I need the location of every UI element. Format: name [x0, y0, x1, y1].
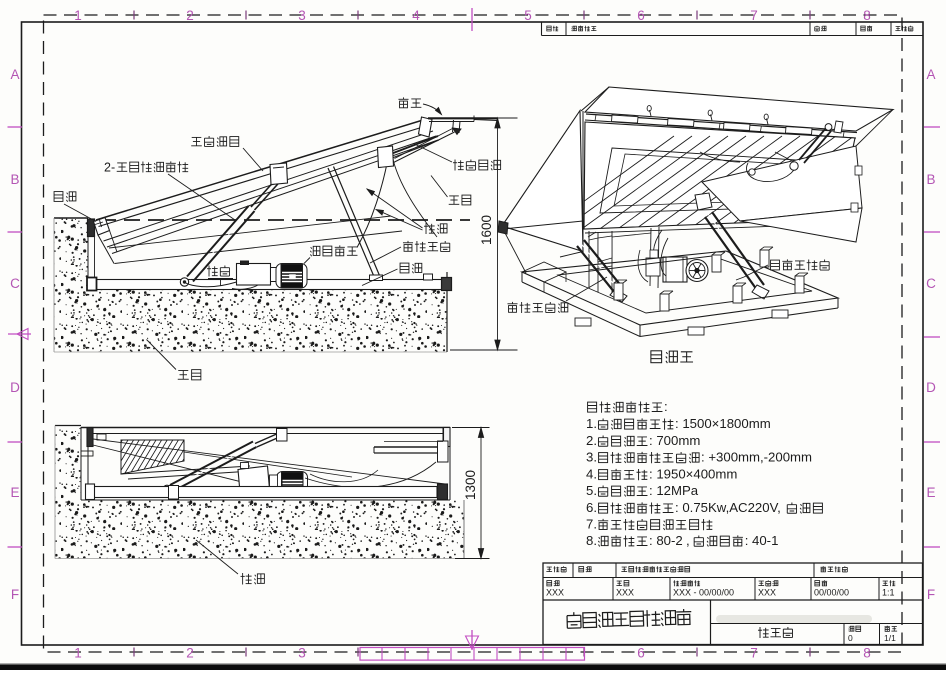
svg-text:E: E	[10, 485, 19, 500]
svg-text:F: F	[927, 587, 935, 602]
svg-text:B: B	[926, 172, 935, 187]
svg-text:1/1: 1/1	[884, 633, 896, 643]
svg-text:6: 6	[637, 646, 645, 661]
svg-text:,: ,	[686, 533, 690, 548]
svg-text:7: 7	[750, 8, 758, 23]
svg-text:1.: 1.	[586, 416, 597, 431]
svg-text:3.: 3.	[586, 449, 597, 464]
svg-text:D: D	[10, 380, 20, 395]
svg-text:1: 1	[74, 646, 82, 661]
svg-text:1600: 1600	[479, 215, 494, 245]
svg-text:: +300mm,-200mm: : +300mm,-200mm	[701, 449, 812, 464]
svg-text:7.: 7.	[586, 516, 597, 531]
svg-text:2-: 2-	[104, 161, 115, 175]
svg-text:B: B	[10, 172, 19, 187]
svg-text:2: 2	[186, 646, 194, 661]
svg-text:4: 4	[412, 8, 420, 23]
svg-text:: 0.75Kw,AC220V,: : 0.75Kw,AC220V,	[675, 500, 781, 515]
svg-text:A: A	[926, 67, 935, 82]
svg-text::: :	[664, 399, 668, 414]
svg-text:3: 3	[298, 8, 306, 23]
svg-text:C: C	[926, 276, 936, 291]
svg-text:: 40-1: : 40-1	[745, 533, 779, 548]
svg-text:XXX: XXX	[616, 588, 634, 598]
svg-text:0: 0	[848, 633, 853, 643]
svg-text:F: F	[11, 587, 19, 602]
svg-text:C: C	[10, 276, 20, 291]
svg-text:4.: 4.	[586, 466, 597, 481]
svg-text:: 12MPa: : 12MPa	[649, 483, 699, 498]
svg-text:8.: 8.	[586, 533, 597, 548]
svg-text:A: A	[10, 67, 19, 82]
svg-text:E: E	[926, 485, 935, 500]
svg-text:D: D	[926, 380, 936, 395]
svg-text:8: 8	[863, 8, 871, 23]
svg-text:5.: 5.	[586, 483, 597, 498]
svg-text:6: 6	[637, 8, 645, 23]
svg-text:00/00/00: 00/00/00	[814, 588, 849, 598]
svg-text:XXX - 00/00/00: XXX - 00/00/00	[673, 588, 734, 598]
svg-text:: 1500×1800mm: : 1500×1800mm	[675, 416, 771, 431]
svg-text:5: 5	[524, 8, 532, 23]
svg-text:XXX: XXX	[758, 588, 776, 598]
svg-text:: 80-2: : 80-2	[649, 533, 683, 548]
svg-text:2: 2	[186, 8, 194, 23]
svg-text:: 1950×400mm: : 1950×400mm	[649, 466, 737, 481]
svg-text:: 700mm: : 700mm	[649, 433, 700, 448]
svg-text:1:1: 1:1	[882, 588, 895, 598]
svg-text:7: 7	[750, 646, 758, 661]
svg-text:XXX: XXX	[546, 588, 564, 598]
svg-text:1300: 1300	[463, 470, 478, 500]
svg-text:6.: 6.	[586, 500, 597, 515]
svg-text:3: 3	[298, 646, 306, 661]
svg-text:1: 1	[74, 8, 82, 23]
svg-text:8: 8	[863, 646, 871, 661]
svg-text:2.: 2.	[586, 433, 597, 448]
